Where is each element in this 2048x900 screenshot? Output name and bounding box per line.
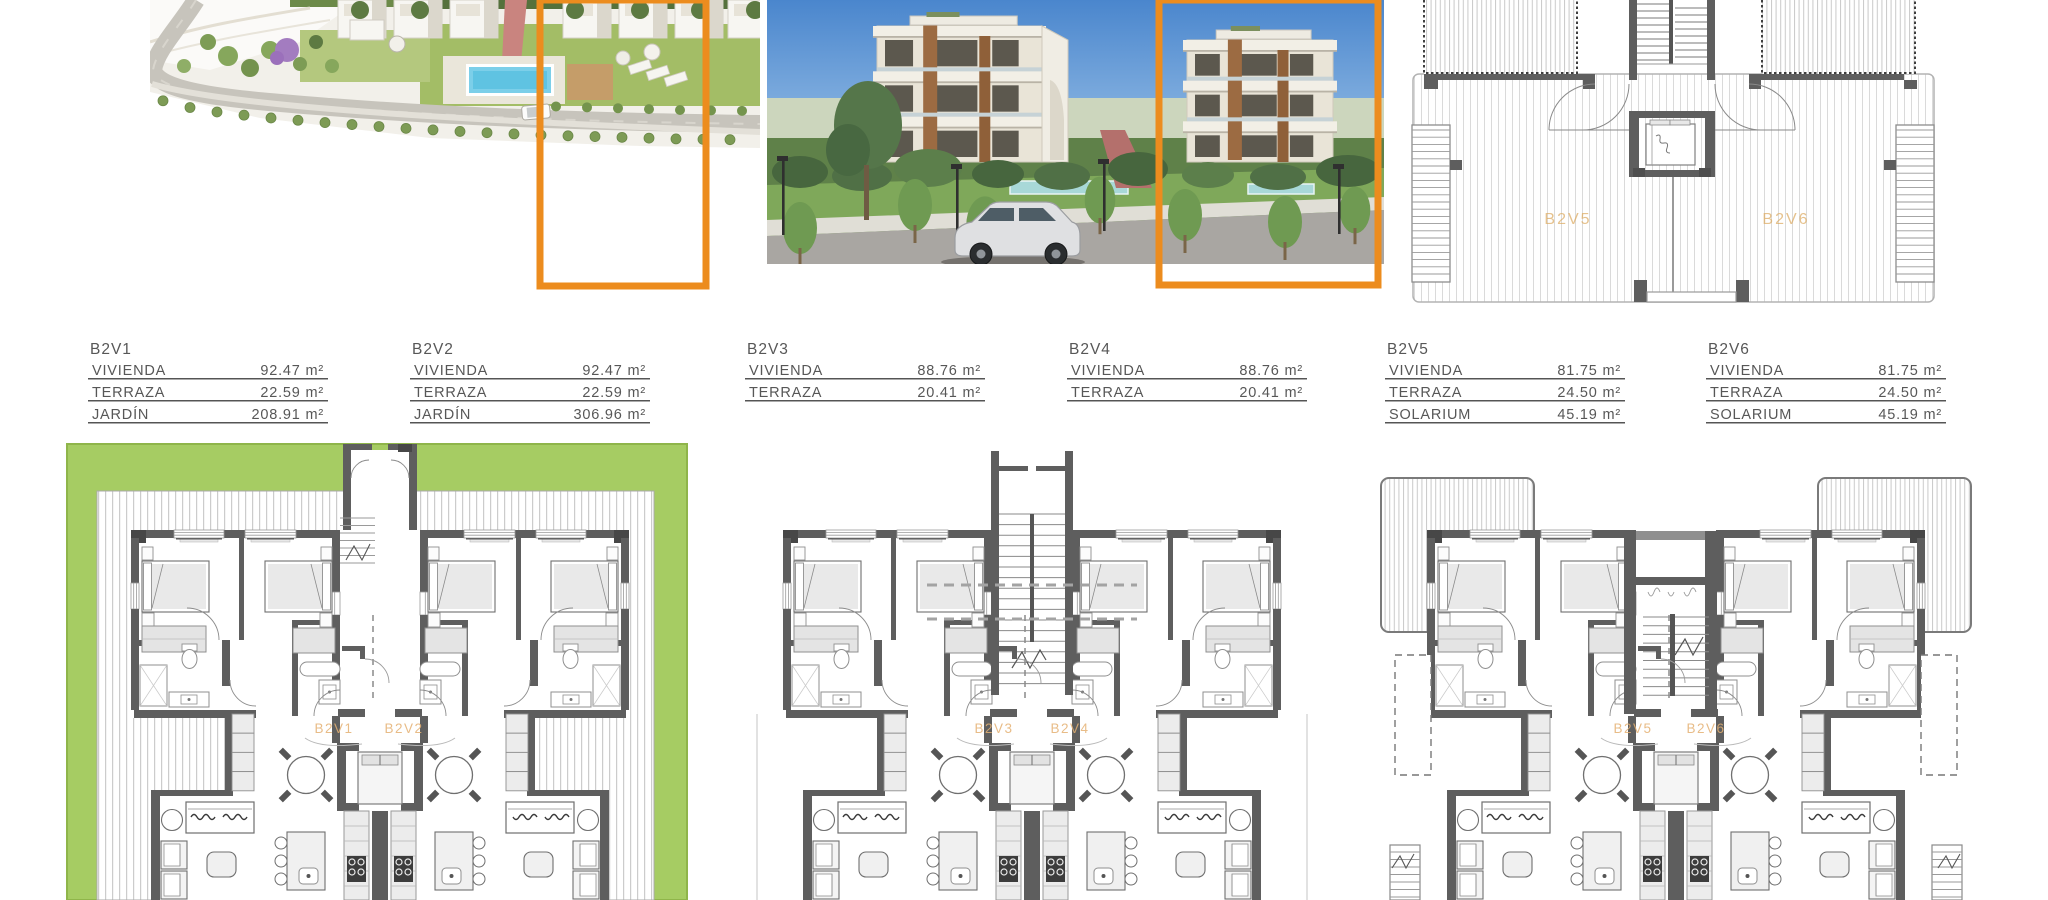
svg-text:TERRAZA: TERRAZA: [1389, 385, 1462, 401]
svg-text:JARDÍN: JARDÍN: [414, 406, 471, 423]
svg-text:TERRAZA: TERRAZA: [414, 385, 487, 401]
svg-text:SOLARIUM: SOLARIUM: [1389, 407, 1471, 423]
svg-text:B2V2: B2V2: [384, 721, 423, 736]
svg-text:92.47 m²: 92.47 m²: [260, 363, 324, 379]
svg-text:B2V5: B2V5: [1387, 341, 1429, 358]
svg-text:45.19 m²: 45.19 m²: [1557, 407, 1621, 423]
svg-text:VIVIENDA: VIVIENDA: [92, 363, 166, 379]
svg-text:B2V6: B2V6: [1762, 211, 1809, 228]
svg-text:B2V4: B2V4: [1050, 721, 1089, 736]
svg-text:B2V5: B2V5: [1613, 721, 1652, 736]
svg-text:92.47 m²: 92.47 m²: [582, 363, 646, 379]
svg-text:20.41 m²: 20.41 m²: [1239, 385, 1303, 401]
svg-text:81.75 m²: 81.75 m²: [1878, 363, 1942, 379]
svg-text:B2V1: B2V1: [90, 341, 132, 358]
svg-text:24.50 m²: 24.50 m²: [1557, 385, 1621, 401]
svg-text:TERRAZA: TERRAZA: [749, 385, 822, 401]
svg-text:B2V4: B2V4: [1069, 341, 1111, 358]
svg-text:24.50 m²: 24.50 m²: [1878, 385, 1942, 401]
svg-text:20.41 m²: 20.41 m²: [917, 385, 981, 401]
svg-text:B2V2: B2V2: [412, 341, 454, 358]
svg-text:306.96 m²: 306.96 m²: [574, 407, 647, 423]
svg-text:B2V3: B2V3: [974, 721, 1013, 736]
svg-text:VIVIENDA: VIVIENDA: [1710, 363, 1784, 379]
svg-text:45.19 m²: 45.19 m²: [1878, 407, 1942, 423]
svg-text:208.91 m²: 208.91 m²: [252, 407, 325, 423]
svg-text:22.59 m²: 22.59 m²: [582, 385, 646, 401]
svg-text:SOLARIUM: SOLARIUM: [1710, 407, 1792, 423]
svg-text:TERRAZA: TERRAZA: [1710, 385, 1783, 401]
svg-text:88.76 m²: 88.76 m²: [917, 363, 981, 379]
svg-text:VIVIENDA: VIVIENDA: [414, 363, 488, 379]
svg-text:81.75 m²: 81.75 m²: [1557, 363, 1621, 379]
svg-text:B2V6: B2V6: [1686, 721, 1725, 736]
svg-text:B2V3: B2V3: [747, 341, 789, 358]
svg-text:TERRAZA: TERRAZA: [92, 385, 165, 401]
svg-text:VIVIENDA: VIVIENDA: [1389, 363, 1463, 379]
svg-text:88.76 m²: 88.76 m²: [1239, 363, 1303, 379]
svg-text:TERRAZA: TERRAZA: [1071, 385, 1144, 401]
svg-text:VIVIENDA: VIVIENDA: [749, 363, 823, 379]
svg-text:22.59 m²: 22.59 m²: [260, 385, 324, 401]
svg-text:VIVIENDA: VIVIENDA: [1071, 363, 1145, 379]
svg-text:B2V6: B2V6: [1708, 341, 1750, 358]
svg-text:JARDÍN: JARDÍN: [92, 406, 149, 423]
svg-text:B2V5: B2V5: [1544, 211, 1591, 228]
svg-text:B2V1: B2V1: [314, 721, 353, 736]
